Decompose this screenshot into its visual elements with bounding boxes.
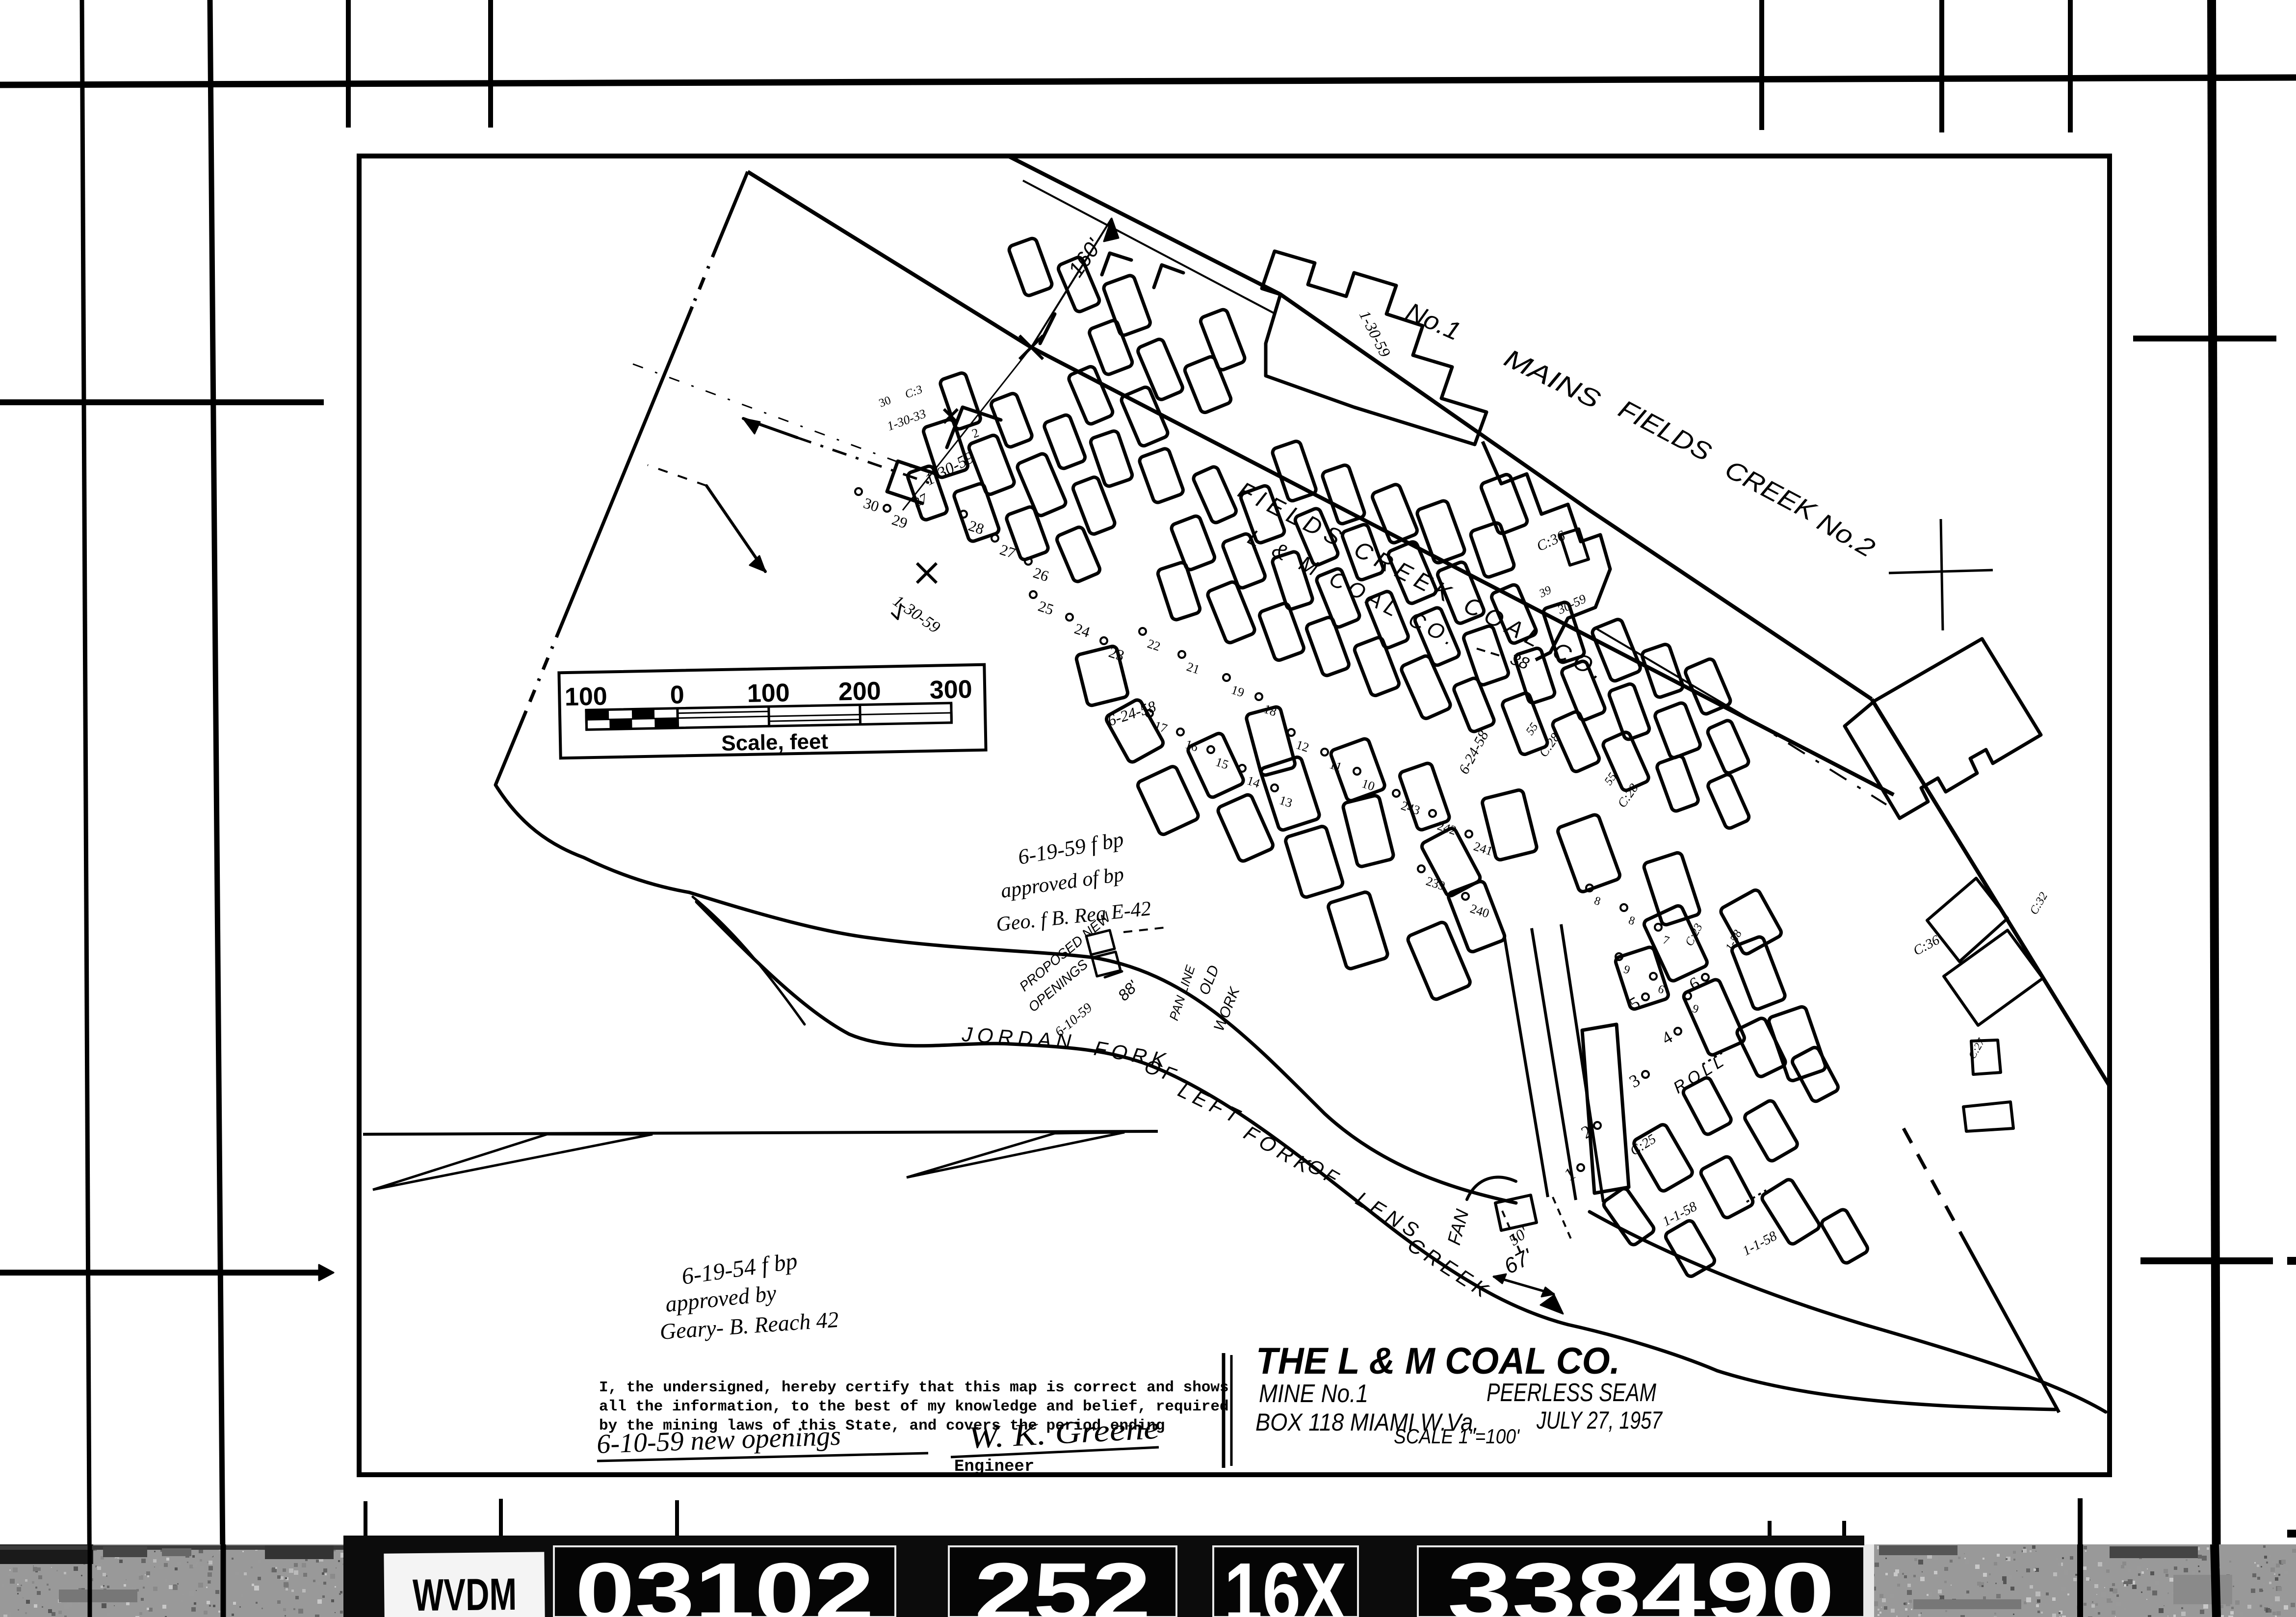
svg-text:100: 100 xyxy=(564,682,607,711)
svg-text:300: 300 xyxy=(929,675,972,704)
svg-text:THE L & M COAL CO.: THE L & M COAL CO. xyxy=(1256,1340,1620,1382)
svg-text:Scale, feet: Scale, feet xyxy=(721,730,829,756)
svg-text:SCALE 1"=100': SCALE 1"=100' xyxy=(1394,1425,1520,1448)
svg-text:0: 0 xyxy=(670,680,684,709)
svg-text:200: 200 xyxy=(838,677,881,706)
svg-text:252: 252 xyxy=(974,1546,1151,1617)
svg-text:I, the undersigned, hereby cer: I, the undersigned, hereby certify that … xyxy=(599,1379,1229,1396)
svg-text:100: 100 xyxy=(747,678,790,708)
svg-text:16X: 16X xyxy=(1224,1546,1347,1617)
svg-text:WVDM: WVDM xyxy=(413,1569,517,1617)
svg-text:MINE No.1: MINE No.1 xyxy=(1259,1380,1368,1408)
svg-text:338490: 338490 xyxy=(1447,1546,1835,1617)
svg-text:PEERLESS SEAM: PEERLESS SEAM xyxy=(1487,1379,1657,1407)
svg-text:03102: 03102 xyxy=(575,1546,874,1617)
svg-text:JULY 27, 1957: JULY 27, 1957 xyxy=(1536,1407,1663,1434)
